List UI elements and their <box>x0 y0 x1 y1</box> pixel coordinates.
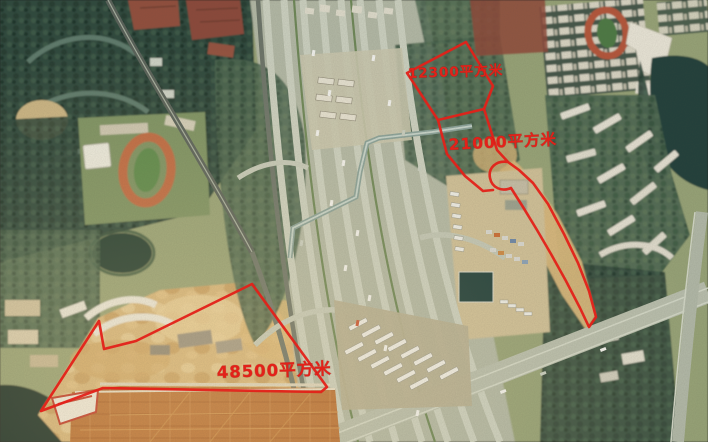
area-label-north: 12300平方米 <box>408 62 504 82</box>
area-label-south: 48500平方米 <box>216 358 332 382</box>
satellite-image: 12300平方米 21000平方米 48500平方米 <box>0 0 708 442</box>
film-grain-overlay <box>0 0 708 442</box>
